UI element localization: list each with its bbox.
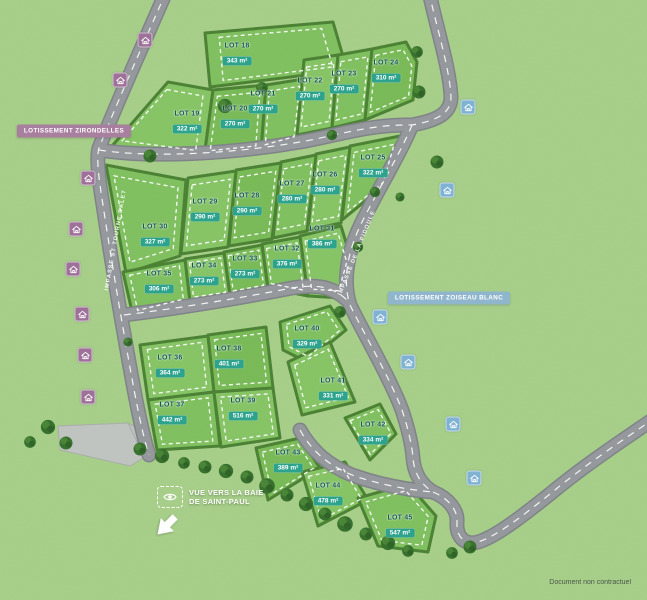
road-name-label: IMPASSE DE LA PIDOULE [337,210,377,297]
eye-icon [157,486,183,508]
subdivision-badge: LOTISSEMENT ZIRONDELLES [17,125,131,138]
bay-view-callout: VUE VERS LA BAIE DE SAINT-PAUL [157,486,287,508]
road-name-label: IMPASSE ST TOURNE DALET [104,189,128,291]
disclaimer-text: Document non contractuel [549,579,631,586]
bay-view-line2: DE SAINT-PAUL [189,497,264,506]
site-plan-map: LOT 18 343 m² LOT 19 322 m² LOT 20 270 m… [0,0,647,600]
map-labels-layer: LOTISSEMENT ZIRONDELLES LOTISSEMENT ZOIS… [0,0,647,600]
bay-view-line1: VUE VERS LA BAIE [189,488,264,497]
subdivision-badge: LOTISSEMENT ZOISEAU BLANC [388,292,510,305]
